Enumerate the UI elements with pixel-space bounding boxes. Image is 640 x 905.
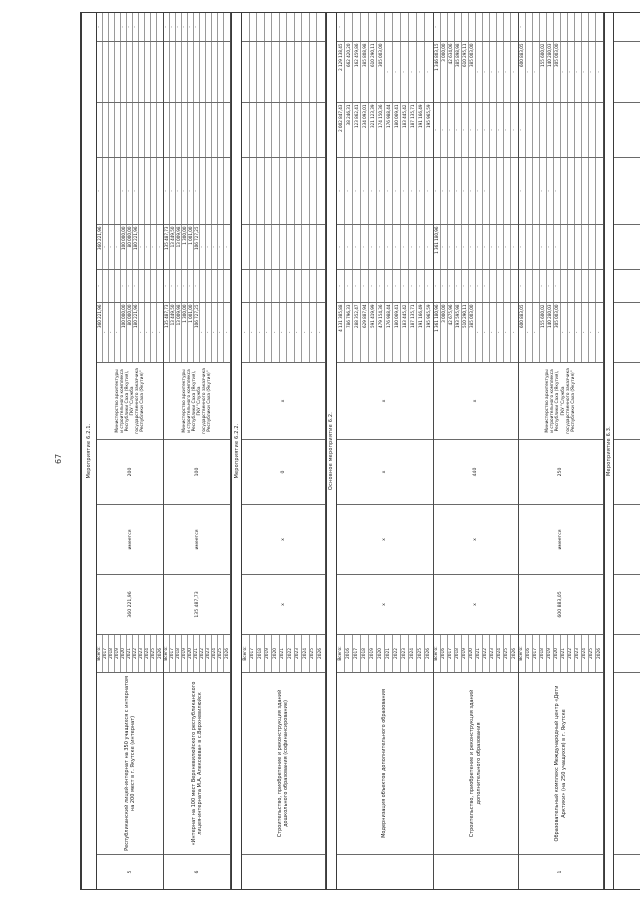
cell-name: Модернизация объектов дополнительного об…: [337, 672, 433, 854]
amount-dash: -: [561, 303, 568, 362]
amount-dash: [526, 270, 533, 302]
amount-dash: [287, 270, 295, 302]
object-row: 1Образовательный комплекс Международный …: [519, 13, 604, 889]
cell-f1: 135 487,7313 449,5013 009,981 300,001 00…: [164, 302, 230, 362]
object-row: Строительство, приобретение и реконструк…: [242, 13, 326, 889]
amount-dash: -: [295, 303, 303, 362]
cell-num: 1: [519, 854, 603, 889]
year-label: 2025: [589, 635, 596, 672]
amount-dash: -: [409, 225, 417, 269]
year-label: 2026: [425, 635, 433, 672]
amount-dash: -: [434, 13, 441, 41]
amount-dash: -: [596, 303, 603, 362]
cell-capacity-value: 0: [281, 471, 286, 474]
year-label: 2023: [401, 635, 409, 672]
year-label: 2017: [448, 635, 455, 672]
amount-dash: [265, 103, 273, 157]
amount-dash: [589, 158, 596, 224]
object-row: Модернизация объектов дополнительного об…: [337, 13, 434, 889]
cell-executor: х: [337, 362, 433, 439]
amount-dash: [425, 13, 433, 41]
amount-dash: -: [425, 225, 433, 269]
object-number: 5: [128, 871, 133, 874]
year-label: 2019: [462, 635, 469, 672]
cell-years: Всего:2017201820192020202120222023202420…: [97, 634, 163, 672]
cell-f6: [242, 41, 325, 102]
amount-dash: -: [469, 158, 476, 224]
executor-line: государственного заказчика: [566, 368, 571, 434]
cell-f7: ------: [164, 13, 230, 41]
amount-dash: [295, 13, 303, 41]
year-label: 2017: [353, 635, 361, 672]
amount-value: 1 361 180,96: [434, 303, 441, 362]
amount-dash: [490, 13, 497, 41]
amount-dash: -: [385, 158, 393, 224]
amount-dash: -: [554, 158, 561, 224]
cell-cost-value: 600 883,05: [558, 591, 563, 617]
cell-f2: ----: [519, 269, 603, 302]
amount-dash: -: [434, 270, 441, 302]
amount-dash: [157, 13, 163, 41]
amount-dash: [242, 103, 250, 157]
amount-dash: [361, 13, 369, 41]
amount-dash: -: [157, 225, 163, 269]
amount-dash: -: [393, 270, 401, 302]
amount-dash: [280, 13, 288, 41]
amount-value: 193 595,98: [455, 303, 462, 362]
amount-dash: -: [257, 303, 265, 362]
amount-value: 155 600,02: [540, 303, 547, 362]
year-label: 2023: [295, 635, 303, 672]
amount-dash: [409, 13, 417, 41]
year-label: 2024: [582, 635, 589, 672]
year-label: 2018: [540, 635, 547, 672]
amount-dash: [310, 42, 318, 102]
executor-line: Республики Саха (Якутия)": [140, 368, 145, 434]
amount-dash: -: [547, 225, 554, 269]
amount-dash: -: [242, 303, 250, 362]
amount-dash: [265, 158, 273, 224]
cell-executor: х: [434, 362, 518, 439]
amount-dash: -: [497, 303, 504, 362]
cell-cost: х: [337, 574, 433, 634]
amount-dash: -: [441, 103, 448, 157]
executor-mark: х: [473, 400, 478, 403]
cell-f3: ------------: [337, 224, 433, 269]
amount-dash: [568, 158, 575, 224]
amount-value: 4 131 385,88: [337, 303, 345, 362]
amount-dash: [224, 270, 230, 302]
amount-dash: -: [483, 158, 490, 224]
cell-capacity-value: х: [382, 471, 387, 474]
amount-dash: -: [504, 103, 511, 157]
amount-dash: [317, 13, 325, 41]
amount-dash: [280, 225, 288, 269]
amount-dash: [287, 13, 295, 41]
cell-f5: 2 002 847,4338 246,31123 862,41234 093,0…: [337, 102, 433, 157]
year-label: 2022: [568, 635, 575, 672]
cell-capacity: 440: [434, 439, 518, 504]
amount-dash: -: [409, 270, 417, 302]
amount-dash: -: [455, 225, 462, 269]
amount-value: 385 003,00: [469, 303, 476, 362]
year-label: 2020: [469, 635, 476, 672]
amount-value: 510 290,11: [462, 303, 469, 362]
amount-dash: [589, 270, 596, 302]
amount-dash: [554, 13, 561, 41]
amount-dash: -: [377, 270, 385, 302]
cell-f3: [242, 224, 325, 269]
amount-dash: -: [476, 103, 483, 157]
object-name: Строительство, приобретение и реконструк…: [277, 673, 290, 854]
object-row: Строительство, приобретение и реконструк…: [434, 13, 519, 889]
amount-dash: [490, 270, 497, 302]
amount-dash: -: [561, 42, 568, 102]
amount-dash: -: [596, 42, 603, 102]
amount-dash: -: [589, 42, 596, 102]
amount-dash: -: [448, 158, 455, 224]
year-label: 2019: [369, 635, 377, 672]
amount-dash: [497, 270, 504, 302]
cell-f4: --------: [434, 157, 518, 224]
amount-dash: [280, 270, 288, 302]
amount-value: 385 003,00: [469, 42, 476, 102]
cell-num: [337, 854, 433, 889]
cell-psd: имеется: [97, 504, 163, 574]
cell-executor: Министерство архитектурыи строительного …: [164, 362, 230, 439]
amount-value: 2 002 847,43: [337, 103, 345, 157]
cell-f1: -----------: [242, 302, 325, 362]
amount-value: 610 290,11: [369, 42, 377, 102]
cell-f3: 135 487,7313 449,5013 009,981 300,001 00…: [164, 224, 230, 269]
year-label: 2019: [547, 635, 554, 672]
amount-dash: -: [361, 270, 369, 302]
cell-cost: 600 883,05: [519, 574, 603, 634]
section-row: Мероприятие 6.3.: [604, 13, 614, 889]
amount-dash: [377, 13, 385, 41]
amount-dash: [265, 225, 273, 269]
amount-dash: -: [302, 303, 310, 362]
amount-dash: -: [476, 270, 483, 302]
year-label: Всего:: [519, 635, 526, 672]
amount-dash: [596, 13, 603, 41]
amount-dash: -: [224, 303, 230, 362]
cell-f7: -: [519, 13, 603, 41]
amount-dash: [242, 270, 250, 302]
amount-value: 3 000,00: [441, 42, 448, 102]
amount-dash: [561, 270, 568, 302]
amount-dash: -: [483, 103, 490, 157]
amount-dash: [455, 13, 462, 41]
amount-dash: [596, 103, 603, 157]
cell-f6: [164, 41, 230, 102]
amount-dash: -: [476, 42, 483, 102]
amount-dash: [250, 42, 258, 102]
amount-dash: [250, 13, 258, 41]
cell-f5: ------------: [434, 102, 518, 157]
amount-dash: [257, 270, 265, 302]
year-label: Всего:: [242, 635, 250, 672]
executor-mark: х: [281, 400, 286, 403]
amount-dash: [272, 42, 280, 102]
amount-dash: -: [377, 158, 385, 224]
amount-dash: [157, 103, 163, 157]
section-row: Мероприятие 6.2.1.: [81, 13, 97, 889]
amount-dash: [265, 270, 273, 302]
amount-dash: -: [455, 158, 462, 224]
amount-dash: -: [441, 225, 448, 269]
page-number: 67: [54, 454, 63, 464]
amount-dash: -: [519, 103, 526, 157]
cell-f1: 600 883,05--155 600,02140 280,03305 003,…: [519, 302, 603, 362]
cell-psd: имеется: [519, 504, 603, 574]
year-label: 2024: [409, 635, 417, 672]
empty-cell-f1: [614, 302, 640, 362]
amount-dash: -: [377, 225, 385, 269]
amount-dash: [547, 13, 554, 41]
cell-num: [242, 854, 325, 889]
amount-dash: -: [455, 103, 462, 157]
amount-dash: -: [490, 103, 497, 157]
cell-capacity-value: 200: [128, 468, 133, 477]
cell-executor: Министерство архитектурыи строительного …: [97, 362, 163, 439]
amount-dash: -: [519, 270, 526, 302]
amount-dash: -: [519, 158, 526, 224]
amount-dash: -: [483, 225, 490, 269]
amount-dash: [589, 13, 596, 41]
amount-dash: [250, 270, 258, 302]
amount-dash: -: [310, 303, 318, 362]
scanned-page: 67 Мероприятие 6.2.1.5Республиканский ли…: [0, 0, 640, 905]
cell-f4: ----: [97, 157, 163, 224]
amount-dash: -: [554, 270, 561, 302]
amount-value: 610 295,11: [462, 42, 469, 102]
amount-dash: -: [337, 13, 345, 41]
section-label: Мероприятие 6.3.: [606, 426, 612, 476]
amount-dash: -: [441, 158, 448, 224]
amount-dash: [224, 42, 230, 102]
cell-num: [434, 854, 518, 889]
amount-dash: [272, 13, 280, 41]
amount-dash: -: [448, 225, 455, 269]
amount-dash: -: [519, 225, 526, 269]
amount-dash: [265, 13, 273, 41]
cell-f5: -: [519, 102, 603, 157]
amount-dash: -: [575, 303, 582, 362]
amount-dash: [295, 42, 303, 102]
cell-psd-value: х: [281, 538, 286, 541]
amount-dash: [310, 158, 318, 224]
amount-dash: [257, 42, 265, 102]
cell-psd-value: имеется: [128, 529, 133, 549]
amount-dash: -: [393, 42, 401, 102]
year-label: 2023: [575, 635, 582, 672]
amount-dash: [287, 158, 295, 224]
cell-name: «Интернат на 100 мест Верхневилюйского р…: [164, 672, 230, 854]
section-label: Основное мероприятие 6.2.: [328, 412, 334, 490]
amount-dash: -: [476, 158, 483, 224]
amount-dash: [317, 103, 325, 157]
amount-dash: [317, 158, 325, 224]
amount-value: 174 150,36: [377, 103, 385, 157]
amount-value: 187 135,71: [409, 303, 417, 362]
amount-dash: [561, 103, 568, 157]
amount-dash: [224, 13, 230, 41]
amount-value: 183 445,42: [401, 303, 409, 362]
amount-dash: -: [469, 103, 476, 157]
amount-dash: [250, 103, 258, 157]
amount-dash: [483, 13, 490, 41]
object-name: «Интернат на 100 мест Верхневилюйского р…: [191, 673, 204, 854]
year-label: 2017: [250, 635, 258, 672]
cell-capacity: 200: [97, 439, 163, 504]
amount-dash: -: [385, 270, 393, 302]
cell-f1: 1 361 180,963 000,0042 675,96193 595,985…: [434, 302, 518, 362]
amount-dash: [575, 270, 582, 302]
cell-f3: 1 361 180,96-----------: [434, 224, 518, 269]
cell-f5: [164, 102, 230, 157]
amount-dash: [504, 270, 511, 302]
amount-dash: [257, 225, 265, 269]
amount-dash: [280, 158, 288, 224]
year-label: 2025: [417, 635, 425, 672]
cell-cost: х: [434, 574, 518, 634]
cell-psd-value: х: [382, 538, 387, 541]
cell-psd-value: имеется: [558, 529, 563, 549]
amount-dash: -: [511, 303, 518, 362]
cell-capacity-value: 100: [195, 468, 200, 477]
amount-dash: -: [476, 225, 483, 269]
year-label: 2016: [526, 635, 533, 672]
amount-dash: [596, 158, 603, 224]
amount-dash: -: [504, 303, 511, 362]
amount-dash: -: [345, 270, 353, 302]
amount-dash: -: [345, 158, 353, 224]
amount-value: 2 129 138,45: [337, 42, 345, 102]
amount-dash: [589, 225, 596, 269]
amount-value: 321 123,39: [369, 103, 377, 157]
amount-dash: -: [417, 42, 425, 102]
amount-value: 288 352,47: [353, 303, 361, 362]
amount-dash: -: [582, 42, 589, 102]
executor-ministry-text: Министерство архитектурыи строительного …: [545, 368, 575, 434]
amount-dash: [295, 103, 303, 157]
amount-dash: -: [409, 158, 417, 224]
cell-psd: х: [434, 504, 518, 574]
amount-dash: [533, 225, 540, 269]
amount-dash: [561, 13, 568, 41]
year-label: 2026: [317, 635, 325, 672]
year-label: 2024: [497, 635, 504, 672]
amount-dash: [295, 158, 303, 224]
year-label: 2017: [533, 635, 540, 672]
amount-dash: -: [511, 225, 518, 269]
amount-dash: [302, 158, 310, 224]
amount-dash: -: [369, 158, 377, 224]
amount-dash: [280, 42, 288, 102]
amount-value: 38 246,31: [345, 103, 353, 157]
section-row: Основное мероприятие 6.2.: [326, 13, 337, 889]
amount-value: 195 965,59: [425, 303, 433, 362]
amount-dash: [526, 13, 533, 41]
cell-cost-value: х: [473, 603, 478, 606]
cell-executor: х: [242, 362, 325, 439]
amount-dash: -: [519, 13, 526, 41]
amount-dash: [242, 158, 250, 224]
amount-dash: -: [547, 158, 554, 224]
amount-dash: -: [425, 158, 433, 224]
amount-value: 591 419,99: [369, 303, 377, 362]
amount-dash: [441, 13, 448, 41]
cell-f2: ------: [164, 269, 230, 302]
object-name: Образовательный комплекс Международный ц…: [554, 673, 567, 854]
amount-dash: -: [401, 42, 409, 102]
amount-value: 123 862,41: [353, 103, 361, 157]
amount-dash: [582, 13, 589, 41]
amount-dash: -: [434, 158, 441, 224]
amount-dash: -: [265, 303, 273, 362]
amount-dash: -: [540, 225, 547, 269]
amount-dash: [287, 103, 295, 157]
empty-cell-capacity: [614, 439, 640, 504]
cell-psd-value: х: [473, 538, 478, 541]
cell-capacity-value: 250: [558, 468, 563, 477]
amount-dash: -: [417, 158, 425, 224]
empty-cell-executor: [614, 362, 640, 439]
executor-line: Республики Саха (Якутия)": [207, 368, 212, 434]
amount-dash: [568, 103, 575, 157]
amount-dash: [224, 158, 230, 224]
amount-dash: -: [224, 225, 230, 269]
amount-dash: -: [462, 225, 469, 269]
amount-dash: -: [483, 42, 490, 102]
amount-value: 183 445,42: [401, 103, 409, 157]
object-row: 5Республиканский лицей-интернат на 350 у…: [97, 13, 164, 889]
amount-value: 140 280,03: [547, 42, 554, 102]
object-name: Строительство, приобретение и реконструк…: [469, 673, 482, 854]
amount-dash: -: [526, 303, 533, 362]
object-number: 1: [558, 871, 563, 874]
amount-value: 305 003,00: [554, 42, 561, 102]
amount-dash: -: [287, 303, 295, 362]
cell-years: Всего:2016201720182019202020212022202320…: [519, 634, 603, 672]
empty-cell-psd: [614, 504, 640, 574]
cell-cost: 360 221,96: [97, 574, 163, 634]
amount-value: 180 069,41: [393, 303, 401, 362]
year-label: 2021: [280, 635, 288, 672]
amount-dash: [295, 225, 303, 269]
amount-dash: [575, 13, 582, 41]
amount-dash: [345, 13, 353, 41]
amount-dash: [317, 42, 325, 102]
cell-name: Строительство, приобретение и реконструк…: [434, 672, 518, 854]
amount-value: 140 280,03: [547, 303, 554, 362]
year-label: 2022: [287, 635, 295, 672]
cell-f4: ------------: [337, 157, 433, 224]
amount-dash: -: [337, 158, 345, 224]
amount-dash: -: [547, 270, 554, 302]
cell-f3: 360 221,96---100 000,0080 000,00180 221,…: [97, 224, 163, 269]
amount-dash: -: [369, 270, 377, 302]
amount-dash: -: [448, 103, 455, 157]
cell-f7: -: [434, 13, 518, 41]
amount-dash: -: [568, 42, 575, 102]
amount-dash: [310, 103, 318, 157]
amount-value: 195 965,59: [425, 103, 433, 157]
year-label: 2020: [554, 635, 561, 672]
cell-f3: ----: [519, 224, 603, 269]
amount-dash: -: [483, 270, 490, 302]
